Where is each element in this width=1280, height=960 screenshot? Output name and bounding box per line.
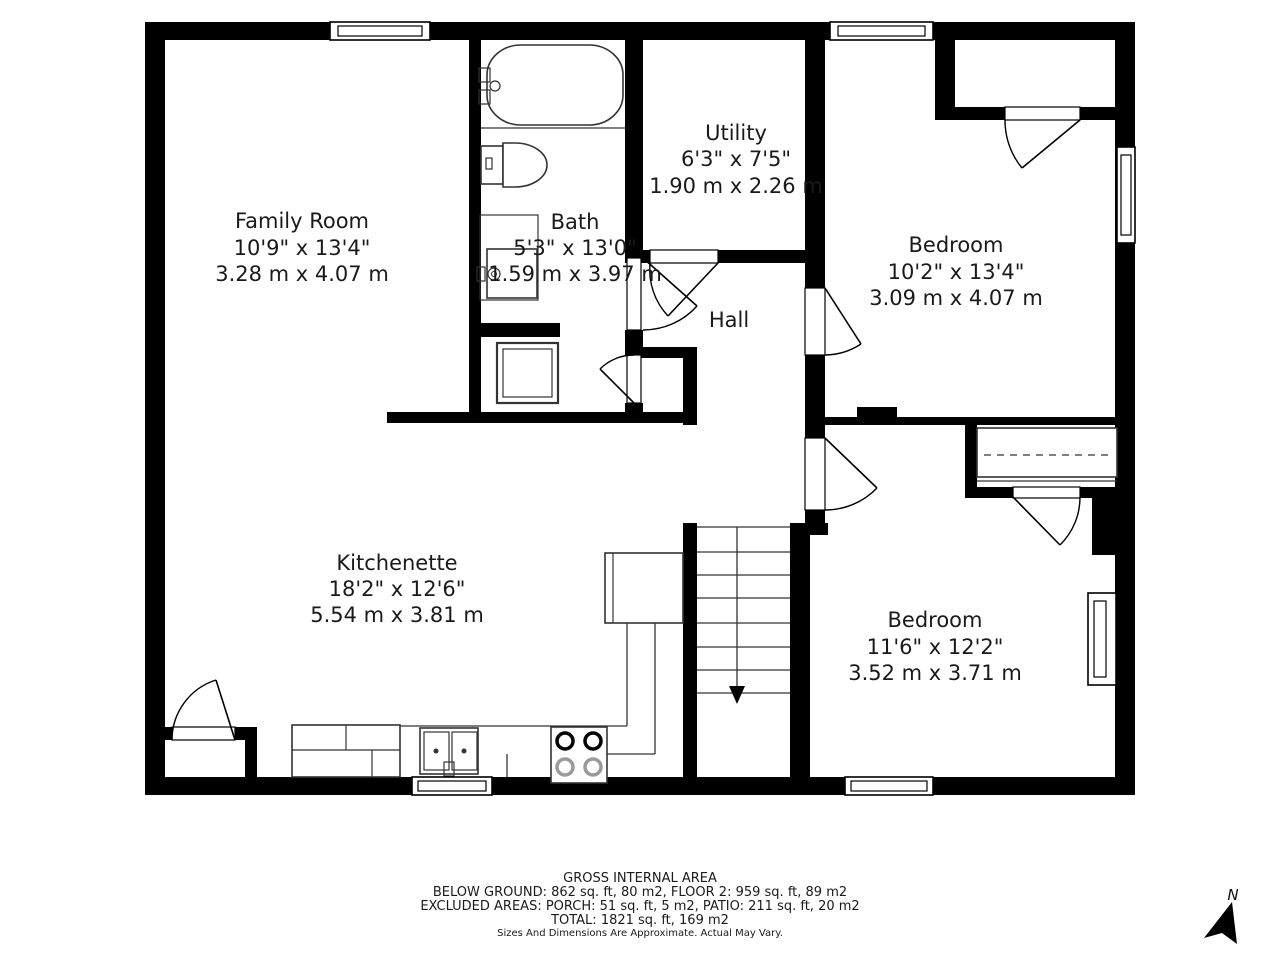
- porch-door: [172, 680, 235, 740]
- bedroom2-name: Bedroom: [888, 608, 983, 632]
- footer-total: TOTAL: 1821 sq. ft, 169 m2: [550, 913, 729, 928]
- bedroom2-dim-ft: 11'6" x 12'2": [867, 635, 1004, 659]
- footer-title: GROSS INTERNAL AREA: [563, 871, 717, 886]
- family-room-dim-m: 3.28 m x 4.07 m: [215, 262, 389, 286]
- bedroom2-door: [805, 438, 877, 510]
- bedroom2-closet-door: [1013, 487, 1080, 545]
- footer-disclaimer: Sizes And Dimensions Are Approximate. Ac…: [497, 928, 783, 939]
- floor-plan-canvas: Family Room 10'9" x 13'4" 3.28 m x 4.07 …: [0, 0, 1280, 960]
- toilet: [481, 143, 547, 187]
- peninsula-counter: [605, 553, 683, 623]
- bedroom1-dim-ft: 10'2" x 13'4": [888, 260, 1025, 284]
- bath-closet-door: [600, 355, 641, 403]
- footer-areas-line1: BELOW GROUND: 862 sq. ft, 80 m2, FLOOR 2…: [433, 885, 847, 900]
- floor-plan-page: Family Room 10'9" x 13'4" 3.28 m x 4.07 …: [0, 0, 1280, 960]
- bedroom1-dim-m: 3.09 m x 4.07 m: [869, 286, 1043, 310]
- bath-dim-ft: 5'3" x 13'0": [513, 236, 636, 260]
- bath-dim-m: 1.59 m x 3.97 m: [488, 262, 662, 286]
- label-family-room: Family Room 10'9" x 13'4" 3.28 m x 4.07 …: [215, 209, 389, 286]
- utility-dim-m: 1.90 m x 2.26 m: [649, 174, 823, 198]
- window-bedroom2-right: [1088, 593, 1116, 685]
- window-family-room-top: [330, 22, 430, 40]
- bathtub: [487, 45, 623, 125]
- kitchenette-dim-m: 5.54 m x 3.81 m: [310, 603, 484, 627]
- kitchen-sink: [420, 728, 478, 776]
- north-arrow-icon: [1204, 902, 1237, 944]
- label-bedroom-1: Bedroom 10'2" x 13'4" 3.09 m x 4.07 m: [869, 233, 1043, 310]
- bedroom1-name: Bedroom: [909, 233, 1004, 257]
- window-kitchenette-bottom: [412, 777, 492, 795]
- stairs-down-arrow-icon: [729, 686, 745, 704]
- bedroom2-dim-m: 3.52 m x 3.71 m: [848, 661, 1022, 685]
- cabinets: [292, 725, 400, 777]
- stove: [551, 727, 607, 783]
- window-bedroom1-right: [1117, 147, 1135, 243]
- staircase: [697, 527, 790, 704]
- label-hall: Hall: [709, 308, 749, 332]
- north-label: N: [1227, 886, 1238, 904]
- footer-areas-line2: EXCLUDED AREAS: PORCH: 51 sq. ft, 5 m2, …: [420, 899, 859, 914]
- kitchenette-dim-ft: 18'2" x 12'6": [329, 577, 466, 601]
- label-utility: Utility 6'3" x 7'5" 1.90 m x 2.26 m: [649, 121, 823, 198]
- compass: N: [1204, 886, 1239, 944]
- window-bedroom1-top: [830, 22, 933, 40]
- shower: [497, 343, 558, 403]
- footer: GROSS INTERNAL AREA BELOW GROUND: 862 sq…: [420, 871, 859, 939]
- family-room-dim-ft: 10'9" x 13'4": [234, 236, 371, 260]
- bath-name: Bath: [551, 210, 600, 234]
- bedroom1-closet-door: [1005, 107, 1080, 168]
- utility-dim-ft: 6'3" x 7'5": [681, 147, 791, 171]
- label-bedroom-2: Bedroom 11'6" x 12'2" 3.52 m x 3.71 m: [848, 608, 1022, 685]
- label-kitchenette: Kitchenette 18'2" x 12'6" 5.54 m x 3.81 …: [310, 551, 484, 627]
- kitchenette-name: Kitchenette: [336, 551, 457, 575]
- window-bedroom2-bottom: [845, 777, 933, 795]
- bedroom1-door: [805, 288, 861, 355]
- family-room-name: Family Room: [235, 209, 369, 233]
- wardrobe: [977, 428, 1117, 481]
- utility-name: Utility: [705, 121, 767, 145]
- hall-name: Hall: [709, 308, 749, 332]
